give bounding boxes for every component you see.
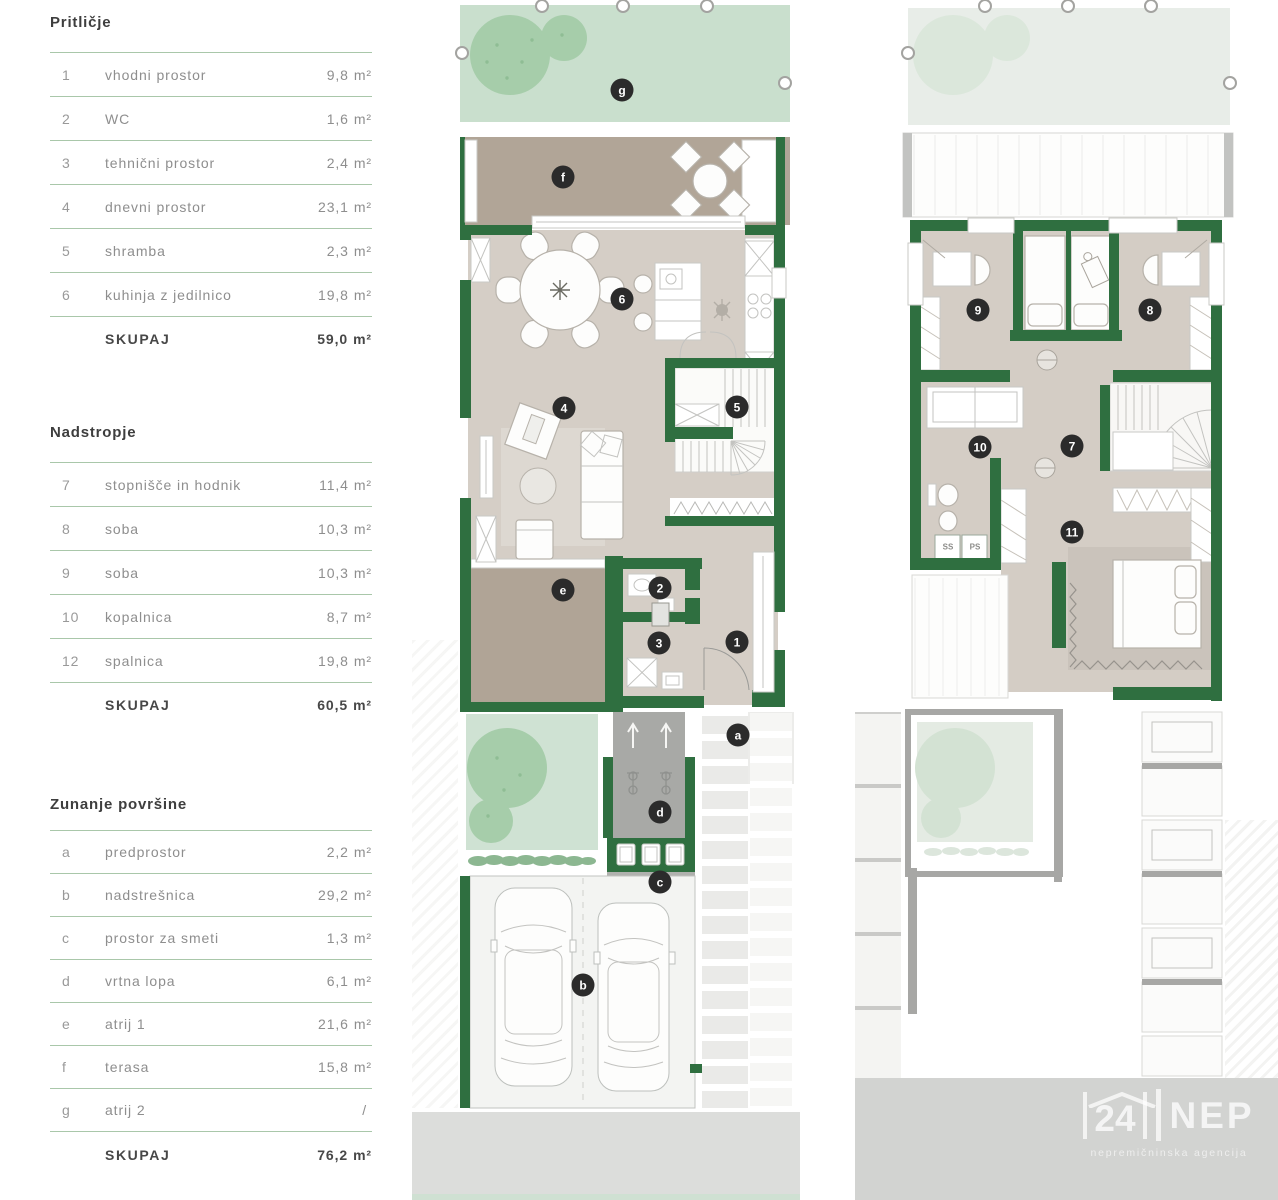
plan-label-6: 6 bbox=[611, 288, 634, 311]
table-total-row: SKUPAJ 76,2m² bbox=[50, 1131, 372, 1178]
table-outdoor-areas: Zunanje površine a predprostor 2,2m² b n… bbox=[50, 796, 372, 1178]
logo-roof-icon bbox=[1087, 1092, 1157, 1108]
logo-house-icon: 24 bbox=[1083, 1092, 1146, 1139]
table-row: 8 soba 10,3m² bbox=[50, 506, 372, 550]
atrium-ghost bbox=[908, 8, 1230, 125]
garden-shed bbox=[603, 712, 695, 838]
table-row: 6 kuhinja z jedilnico 19,8m² bbox=[50, 272, 372, 316]
side-steps bbox=[855, 712, 901, 1092]
gate-marker bbox=[690, 1064, 702, 1073]
hatch-texture bbox=[1225, 820, 1278, 1078]
table-row: b nadstrešnica 29,2m² bbox=[50, 873, 372, 916]
table-row: 9 soba 10,3m² bbox=[50, 550, 372, 594]
ground-floor-plan: g f 6 4 5 2 3 1 e a d c b bbox=[412, 0, 800, 1200]
car bbox=[594, 903, 675, 1091]
plan-label-e: e bbox=[552, 579, 575, 602]
appliance-label-ps: PS bbox=[970, 543, 981, 552]
road bbox=[412, 1112, 800, 1194]
plan-label-f: f bbox=[552, 166, 575, 189]
hatch-texture bbox=[412, 640, 458, 1108]
floor-plan-sheet: Pritličje 1 vhodni prostor 9,8m² 2 WC 1,… bbox=[0, 0, 1278, 1200]
site-ghost bbox=[908, 712, 1222, 1076]
plan-label-9: 9 bbox=[967, 299, 990, 322]
logo-name: NEP bbox=[1170, 1097, 1255, 1134]
plan-label-8: 8 bbox=[1139, 299, 1162, 322]
table-row: g atrij 2 / bbox=[50, 1088, 372, 1131]
table-upper-floor: Nadstropje 7 stopnišče in hodnik 11,4m² … bbox=[50, 424, 372, 726]
roof-texture bbox=[913, 135, 1223, 215]
table-total-row: SKUPAJ 59,0m² bbox=[50, 316, 372, 360]
plan-label-10: 10 bbox=[969, 436, 992, 459]
upper-floor-plan: 9 8 10 7 11 SS PS 24 NEP nepremičninska … bbox=[855, 0, 1278, 1200]
plan-label-2: 2 bbox=[649, 577, 672, 600]
atrium-2-garden bbox=[460, 5, 790, 122]
roof-texture bbox=[914, 578, 1006, 696]
table-ground-floor: Pritličje 1 vhodni prostor 9,8m² 2 WC 1,… bbox=[50, 14, 372, 360]
table-row: 10 kopalnica 8,7m² bbox=[50, 594, 372, 638]
atrium-1-floor bbox=[466, 568, 606, 710]
appliance-label-ss: SS bbox=[943, 543, 954, 552]
agency-logo-row: 24 NEP bbox=[1083, 1089, 1254, 1141]
plan-label-5: 5 bbox=[726, 396, 749, 419]
road-verge bbox=[412, 1194, 800, 1200]
table-row: c prostor za smeti 1,3m² bbox=[50, 916, 372, 959]
terrace bbox=[460, 137, 790, 228]
car bbox=[491, 888, 576, 1086]
logo-subtitle: nepremičninska agencija bbox=[1091, 1147, 1248, 1159]
agency-logo: 24 NEP nepremičninska agencija bbox=[1079, 1089, 1259, 1159]
table-row: 1 vhodni prostor 9,8m² bbox=[50, 52, 372, 96]
table-title-ground-floor: Pritličje bbox=[50, 14, 372, 52]
table-row: f terasa 15,8m² bbox=[50, 1045, 372, 1088]
plan-label-d: d bbox=[649, 801, 672, 824]
plan-label-g: g bbox=[611, 79, 634, 102]
window bbox=[772, 268, 786, 298]
table-row: 4 dnevni prostor 23,1m² bbox=[50, 184, 372, 228]
walkway-stripes bbox=[702, 716, 748, 1108]
walkway-stripes bbox=[750, 713, 792, 1108]
table-row: 5 shramba 2,3m² bbox=[50, 228, 372, 272]
table-row: 3 tehnični prostor 2,4m² bbox=[50, 140, 372, 184]
plan-label-1: 1 bbox=[726, 631, 749, 654]
table-row: 12 spalnica 19,8m² bbox=[50, 638, 372, 682]
table-row: e atrij 1 21,6m² bbox=[50, 1002, 372, 1045]
plan-label-a: a bbox=[727, 724, 750, 747]
garden bbox=[466, 714, 598, 866]
table-title-upper-floor: Nadstropje bbox=[50, 424, 372, 462]
plan-label-c: c bbox=[649, 871, 672, 894]
table-row: 2 WC 1,6m² bbox=[50, 96, 372, 140]
plan-label-3: 3 bbox=[648, 632, 671, 655]
plan-label-7: 7 bbox=[1061, 435, 1084, 458]
upper-staircase bbox=[1110, 383, 1212, 471]
plan-label-b: b bbox=[572, 974, 595, 997]
table-title-outdoor-areas: Zunanje površine bbox=[50, 796, 372, 830]
table-row: a predprostor 2,2m² bbox=[50, 830, 372, 873]
plan-label-4: 4 bbox=[553, 397, 576, 420]
table-row: 7 stopnišče in hodnik 11,4m² bbox=[50, 462, 372, 506]
table-row: d vrtna lopa 6,1m² bbox=[50, 959, 372, 1002]
table-total-row: SKUPAJ 60,5m² bbox=[50, 682, 372, 726]
plan-label-11: 11 bbox=[1061, 521, 1084, 544]
